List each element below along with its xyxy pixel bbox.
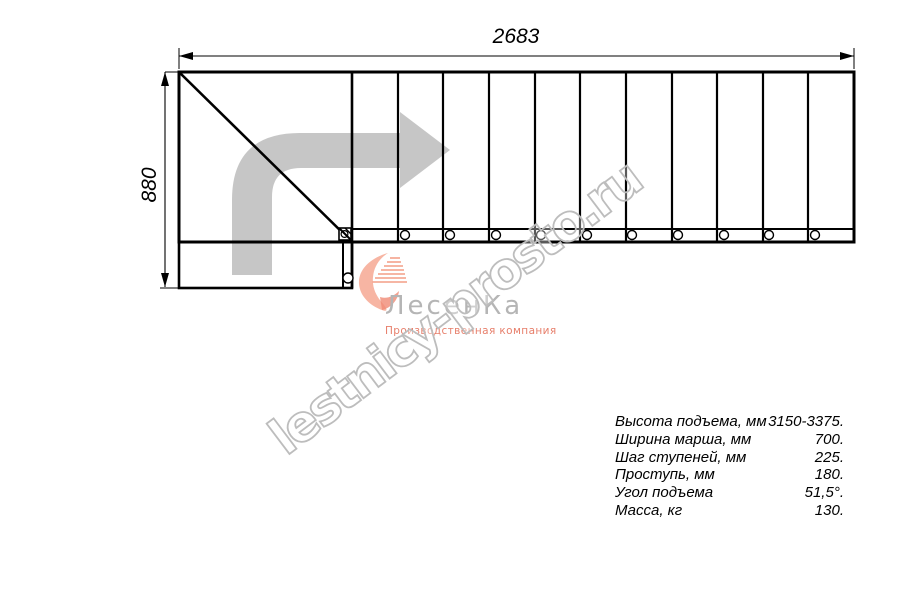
spec-label: Масса, кг <box>615 502 682 520</box>
spec-value: 130. <box>815 502 844 520</box>
spec-value: 51,5°. <box>805 484 844 502</box>
spec-row: Шаг ступеней, мм225. <box>615 449 844 467</box>
logo-tagline: Производственная компания <box>385 325 557 337</box>
spec-row: Проступь, мм180. <box>615 466 844 484</box>
dimension-line-width <box>179 48 854 69</box>
spec-label: Ширина марша, мм <box>615 431 751 449</box>
height-dimension-label: 880 <box>138 155 162 215</box>
spec-value: 180. <box>815 466 844 484</box>
spec-value: 225. <box>815 449 844 467</box>
spec-label: Шаг ступеней, мм <box>615 449 746 467</box>
spec-row: Масса, кг130. <box>615 502 844 520</box>
staircase-drawing-canvas: 2683 880 ЛесенКа Производственная компан… <box>0 0 900 600</box>
spec-row: Ширина марша, мм700. <box>615 431 844 449</box>
spec-label: Высота подъема, мм <box>615 413 767 431</box>
spec-label: Проступь, мм <box>615 466 715 484</box>
spec-value: 3150-3375. <box>768 413 844 431</box>
spec-row: Высота подъема, мм3150-3375. <box>615 413 844 431</box>
spec-table: Высота подъема, мм3150-3375.Ширина марша… <box>615 413 844 520</box>
joint-hatch-square <box>339 228 351 240</box>
spec-value: 700. <box>815 431 844 449</box>
logo-company-name: ЛесенКа <box>385 291 523 321</box>
logo: ЛесенКа Производственная компания <box>350 247 560 342</box>
spec-row: Угол подъема51,5°. <box>615 484 844 502</box>
spec-label: Угол подъема <box>615 484 713 502</box>
step-lines <box>398 72 808 242</box>
width-dimension-label: 2683 <box>456 25 576 49</box>
